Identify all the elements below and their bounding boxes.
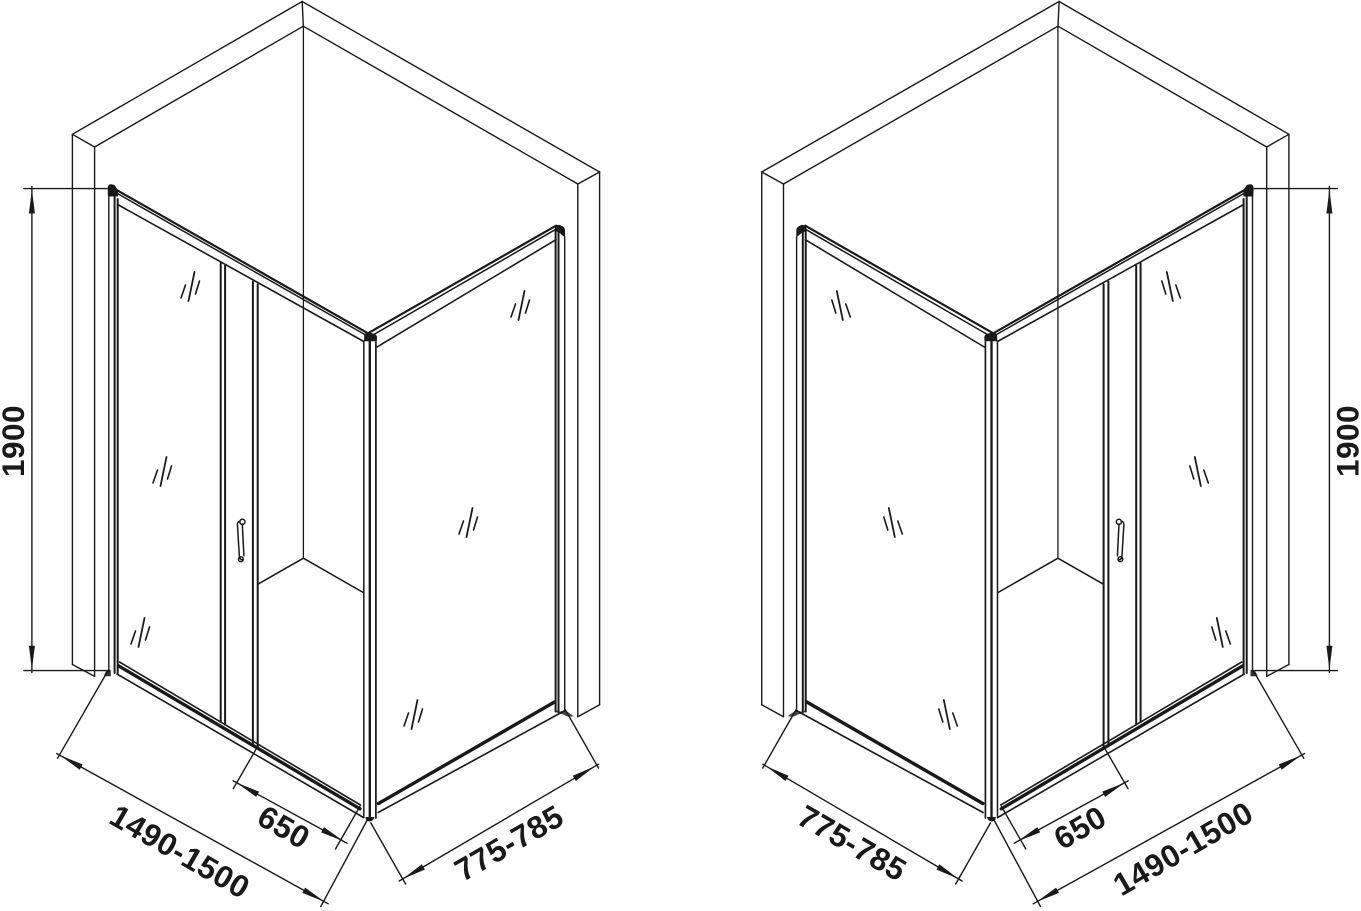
svg-text:1900: 1900 (1329, 405, 1361, 477)
svg-text:1900: 1900 (0, 405, 31, 477)
